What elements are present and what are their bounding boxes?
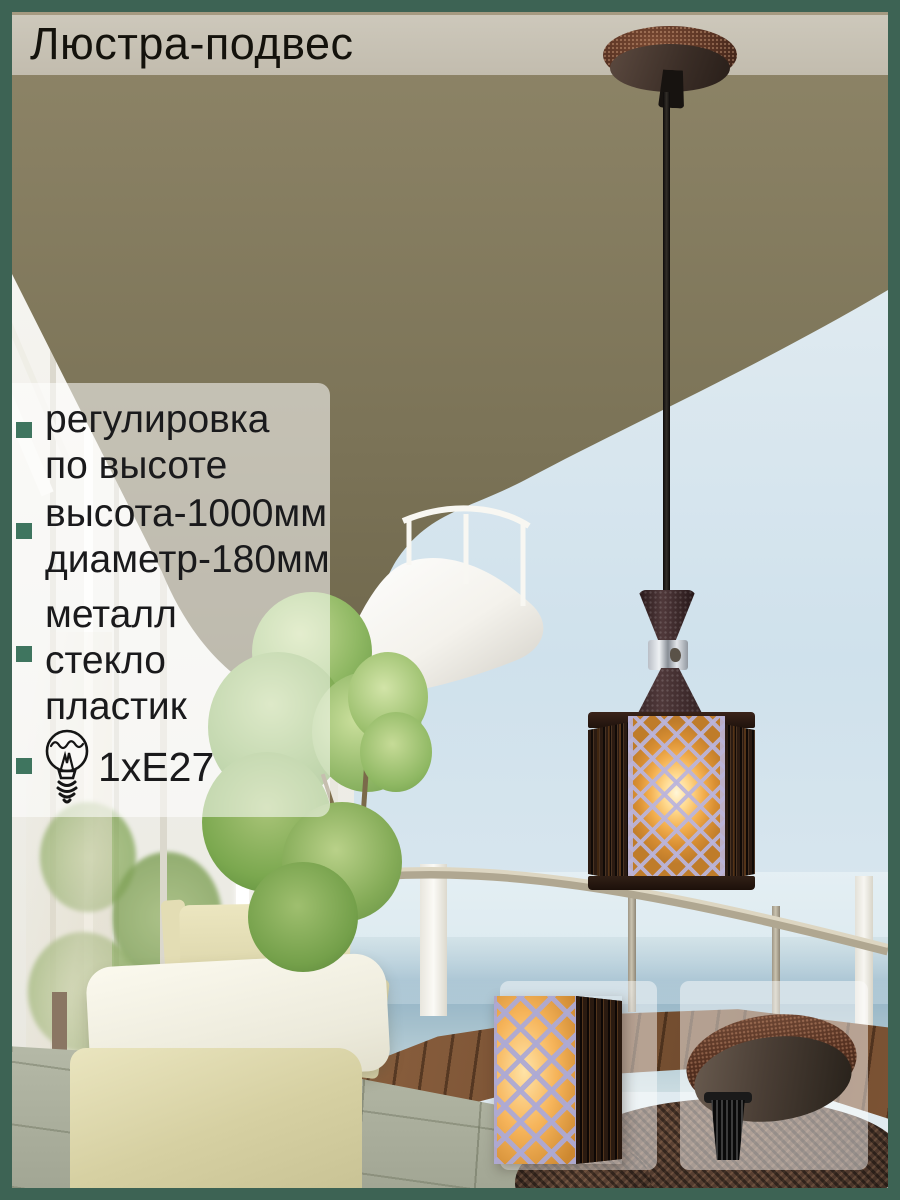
- bullet-square: [16, 758, 32, 774]
- shade-closeup-photo: [494, 996, 622, 1164]
- spec-line: высота-1000мм: [45, 491, 330, 537]
- spec-line: диаметр-180мм: [45, 537, 330, 583]
- bullet-square: [16, 646, 32, 662]
- socket-label: 1xE27: [98, 744, 214, 791]
- bullet-square: [16, 523, 32, 539]
- spec-line: по высоте: [45, 443, 270, 489]
- ceiling-mount: [603, 26, 737, 100]
- spec-line: металл: [45, 592, 187, 638]
- bullet-square: [16, 422, 32, 438]
- product-card: { "header": { "title": "Люстра-подвес" }…: [0, 0, 900, 1200]
- shade-lattice-panel: [628, 716, 725, 886]
- spec-line: стекло: [45, 638, 187, 684]
- chrome-reflection: [670, 648, 681, 662]
- tree-foliage: [360, 712, 432, 792]
- spec-item-height-adjust: регулировка по высоте: [45, 397, 270, 489]
- lattice-panel-closeup: [494, 996, 579, 1164]
- balcony-photo: Люстра-подвес регулировка по высоте высо…: [12, 12, 888, 1188]
- page-title: Люстра-подвес: [30, 18, 354, 70]
- title-bar: Люстра-подвес: [12, 12, 888, 75]
- pendant-cord: [663, 92, 670, 594]
- tree-foliage: [248, 862, 358, 972]
- spec-item-materials: металл стекло пластик: [45, 592, 187, 730]
- spec-line: регулировка: [45, 397, 270, 443]
- lampshade: [588, 712, 755, 890]
- spec-item-dimensions: высота-1000мм диаметр-180мм: [45, 491, 330, 583]
- shade-bottom-rim: [588, 876, 755, 890]
- mount-closeup-photo: [681, 1005, 864, 1137]
- rod-side-closeup: [576, 996, 622, 1164]
- spec-item-socket: 1xE27: [42, 724, 214, 810]
- chrome-band: [648, 640, 688, 670]
- light-bulb-icon: [42, 724, 92, 810]
- shade-left-rods: [588, 722, 630, 882]
